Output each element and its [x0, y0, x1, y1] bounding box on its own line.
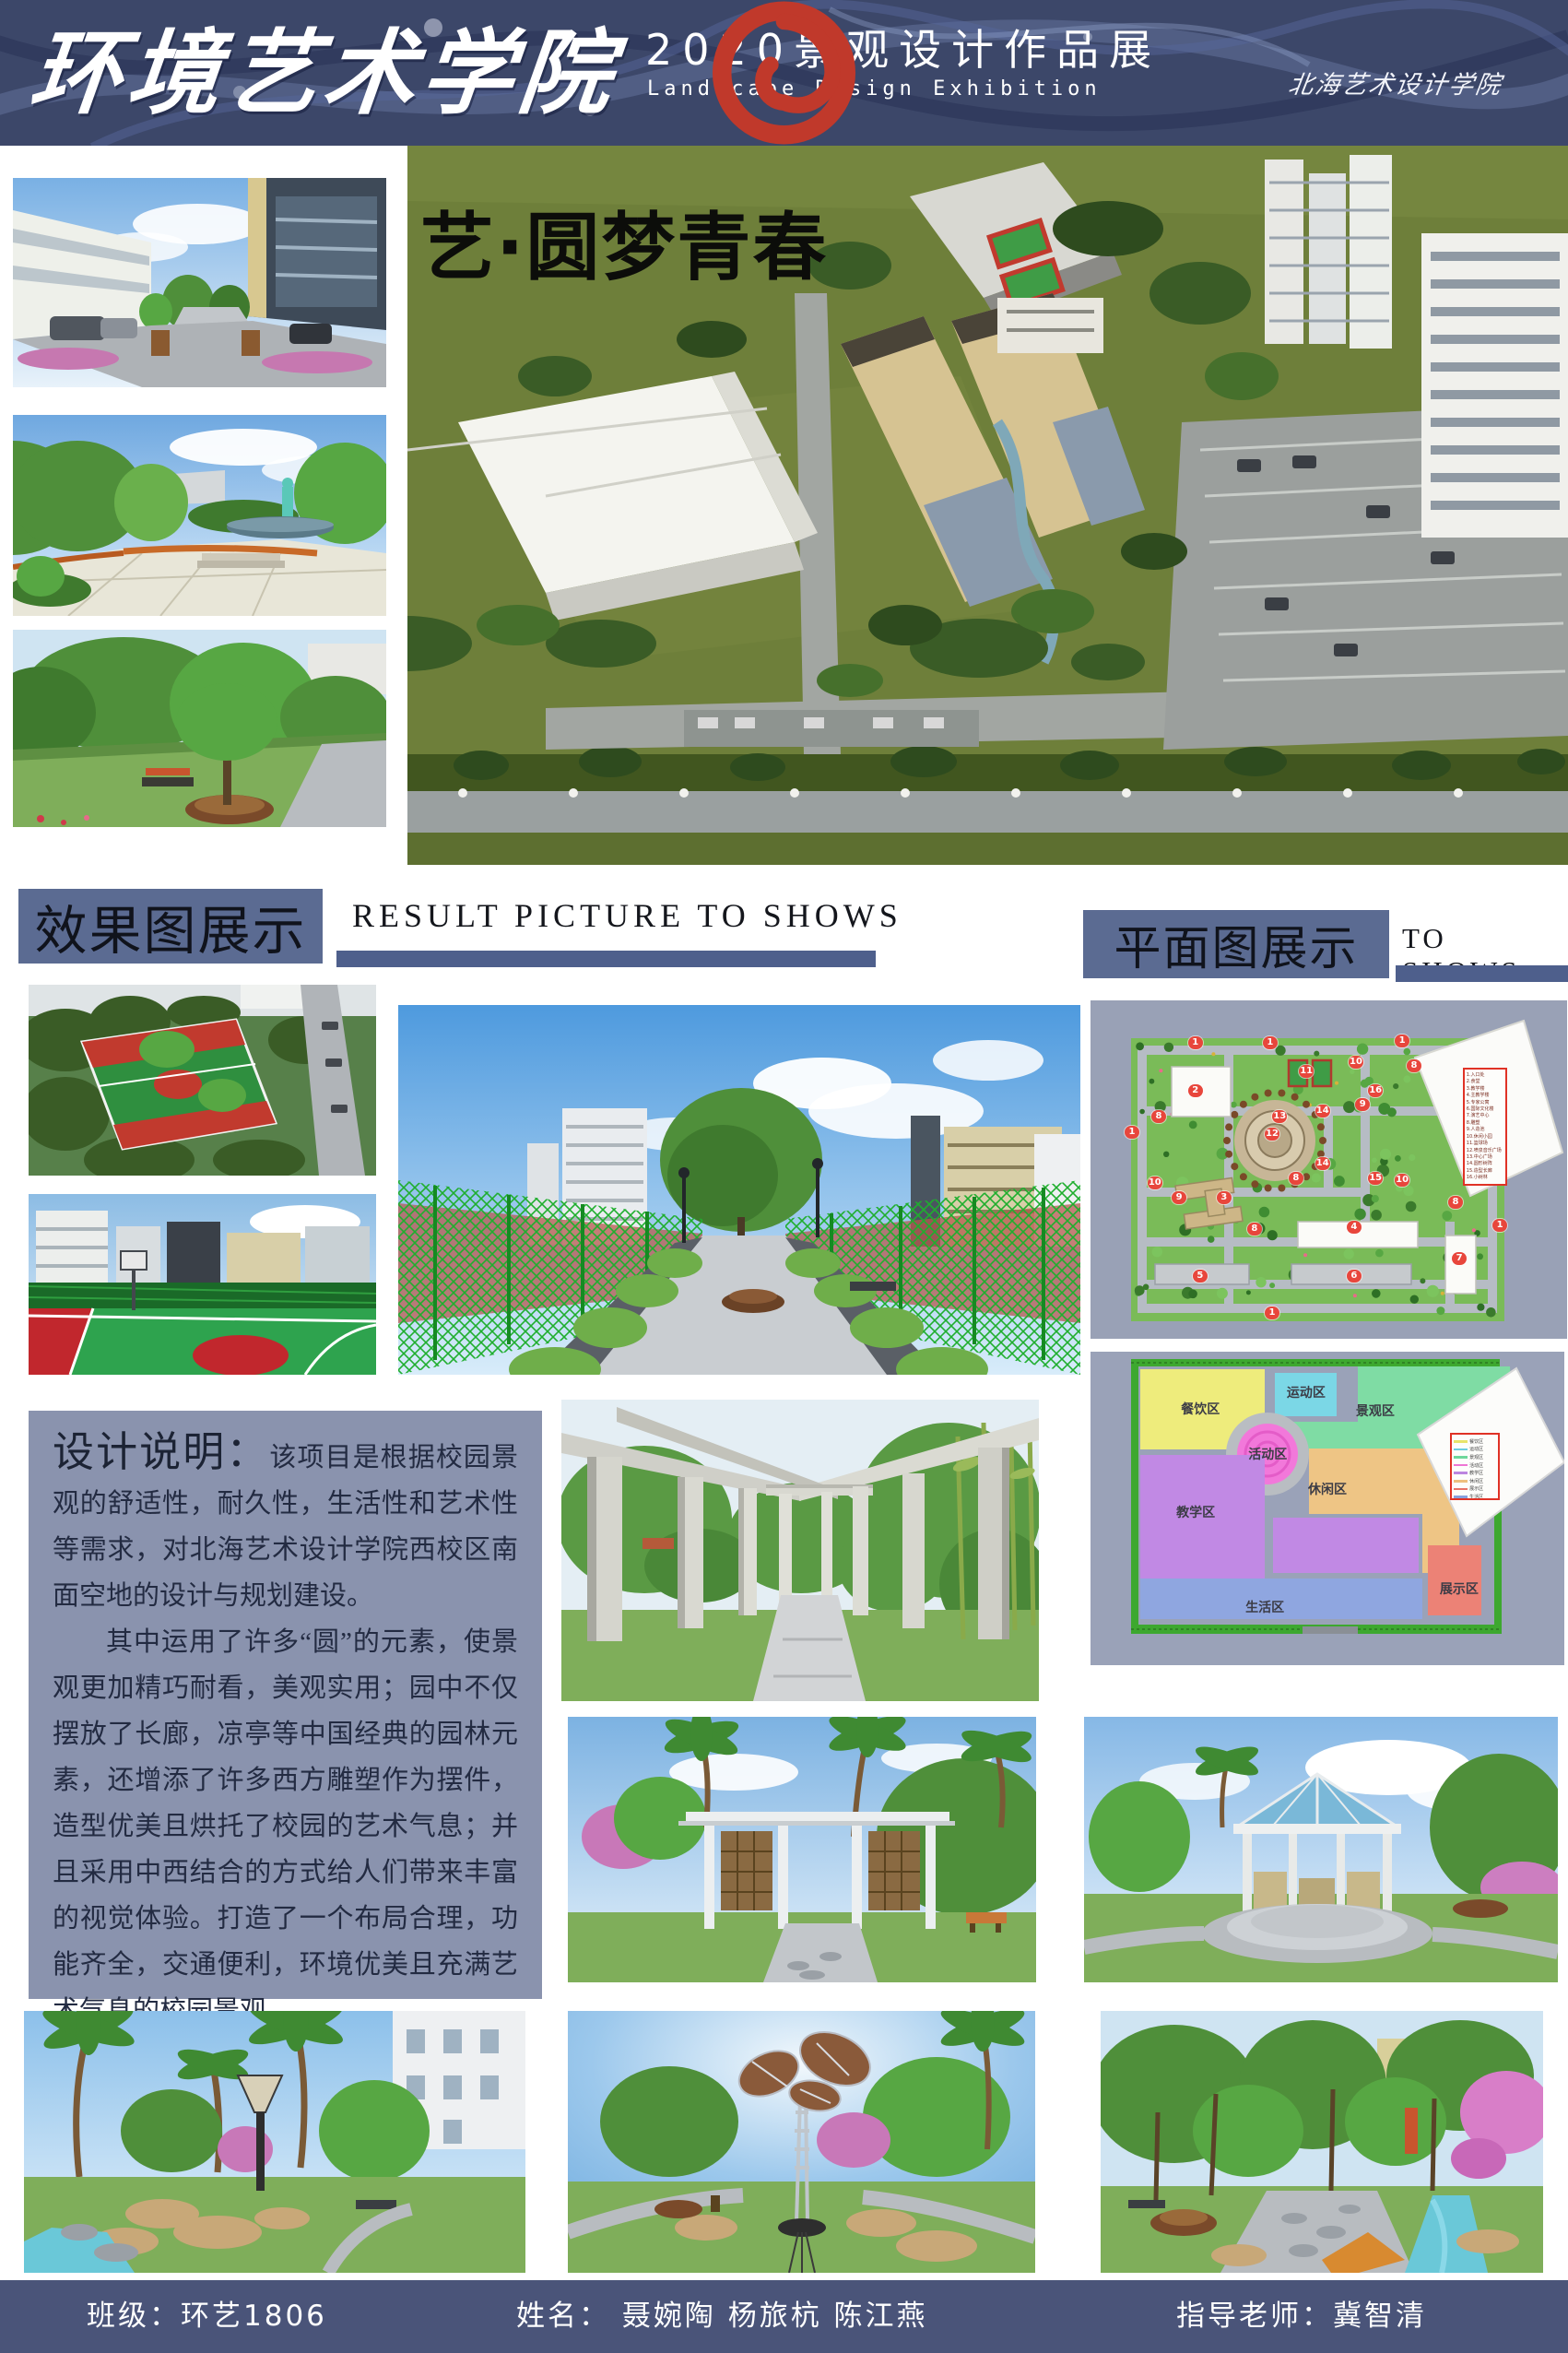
plan-number-marker: 10 — [1395, 1174, 1409, 1187]
section-plan-underline-bar — [1396, 965, 1568, 982]
plan-number-marker: 9 — [1355, 1098, 1370, 1111]
zone-legend-swatch — [1454, 1480, 1468, 1483]
header-banner: 环境艺术学院 2020景观设计作品展 Landscape Design Exhi… — [0, 0, 1568, 146]
zone-legend-item: 展示区 — [1454, 1485, 1496, 1494]
plan-number-marker: 5 — [1193, 1270, 1208, 1283]
plan-number-marker: 8 — [1407, 1059, 1421, 1072]
render-flower-sculpture-image — [568, 2011, 1035, 2273]
site-plan-legend-items: 1.入口处2.食堂3.教学楼4.主教学楼5.专家公寓6.国际文化楼7.演艺中心8… — [1467, 1072, 1504, 1182]
design-description-paragraph-1: 设计说明：该项目是根据校园景观的舒适性，耐久性，生活性和艺术性等需求，对北海艺术… — [53, 1429, 518, 1619]
plan-number-marker: 8 — [1247, 1223, 1262, 1236]
section-effect-title-box: 效果图展示 — [18, 889, 323, 964]
render-pergola-corridor-image — [561, 1400, 1039, 1701]
site-legend-item: 7.演艺中心 — [1467, 1113, 1504, 1119]
plan-number-marker: 16 — [1368, 1084, 1383, 1097]
zone-legend-swatch — [1454, 1440, 1468, 1443]
zone-legend-swatch — [1454, 1488, 1468, 1491]
zone-label: 生活区 — [1245, 1598, 1284, 1616]
plan-number-marker: 6 — [1347, 1270, 1362, 1283]
plan-number-marker: 14 — [1315, 1105, 1330, 1117]
zone-label: 展示区 — [1440, 1579, 1479, 1598]
zone-legend-swatch — [1454, 1472, 1468, 1474]
zone-legend-item: 餐饮区 — [1454, 1437, 1496, 1446]
plan-number-marker: 8 — [1448, 1196, 1463, 1209]
plan-number-marker: 1 — [1188, 1036, 1203, 1049]
site-legend-item: 14.圆形树阵 — [1467, 1161, 1504, 1167]
design-description-box: 设计说明：该项目是根据校园景观的舒适性，耐久性，生活性和艺术性等需求，对北海艺术… — [29, 1411, 542, 1999]
names-label: 姓名： 聂婉陶 杨旅杭 陈江燕 — [516, 2280, 928, 2353]
site-legend-item: 2.食堂 — [1467, 1079, 1504, 1085]
plan-number-marker: 4 — [1347, 1221, 1362, 1234]
plan-number-marker: 1 — [1265, 1307, 1279, 1319]
design-description-title: 设计说明： — [53, 1429, 269, 1475]
site-legend-item: 11.篮球场 — [1467, 1141, 1504, 1147]
render-lawn-garden-image — [13, 630, 386, 827]
poster: 环境艺术学院 2020景观设计作品展 Landscape Design Exhi… — [0, 0, 1568, 2353]
plan-number-marker: 8 — [1151, 1110, 1166, 1123]
plan-number-marker: 13 — [1272, 1110, 1287, 1123]
site-legend-item: 15.造型长廊 — [1467, 1168, 1504, 1175]
plan-number-marker: 15 — [1368, 1172, 1383, 1185]
advisor-label: 指导老师：冀智清 — [1176, 2280, 1427, 2353]
render-fountain-plaza-image — [13, 415, 386, 616]
plan-number-marker: 3 — [1217, 1191, 1232, 1204]
section-effect-subtitle: RESULT PICTURE TO SHOWS — [352, 896, 902, 935]
site-legend-item: 4.主教学楼 — [1467, 1093, 1504, 1099]
design-description-paragraph-2: 其中运用了许多“圆”的元素，使景观更加精巧耐看，美观实用；园中不仅摆放了长廊，凉… — [53, 1619, 518, 2034]
render-basketball-court-image — [29, 1194, 376, 1375]
site-plan-figure: 111111234567888889910101011121314141516 … — [1091, 1000, 1567, 1339]
zone-label: 休闲区 — [1308, 1480, 1347, 1498]
section-plan-title-box: 平面图展示 — [1083, 910, 1389, 978]
zone-label: 景观区 — [1356, 1401, 1395, 1420]
zone-plan-legend-items: 餐饮区运动区景观区活动区教学区休闲区展示区生活区 — [1454, 1437, 1496, 1500]
plan-number-marker: 10 — [1148, 1176, 1162, 1189]
plan-number-marker: 2 — [1188, 1084, 1203, 1097]
section-plan-title: 平面图展示 — [1114, 910, 1358, 978]
plan-number-marker: 11 — [1299, 1065, 1314, 1078]
site-legend-item: 9.人造池 — [1467, 1127, 1504, 1133]
zone-legend-item: 教学区 — [1454, 1469, 1496, 1477]
render-street-view-image — [13, 178, 386, 387]
site-legend-item: 5.专家公寓 — [1467, 1100, 1504, 1106]
plan-number-marker: 12 — [1265, 1128, 1279, 1141]
site-legend-item: 16.小树林 — [1467, 1175, 1504, 1181]
zone-label: 活动区 — [1248, 1445, 1287, 1463]
zone-label: 餐饮区 — [1181, 1400, 1220, 1418]
zone-plan-figure: 餐饮区运动区景观区活动区休闲区教学区生活区展示区 餐饮区运动区景观区活动区教学区… — [1091, 1352, 1564, 1665]
plan-number-marker: 1 — [1395, 1035, 1409, 1047]
zone-label: 运动区 — [1287, 1383, 1326, 1401]
render-palm-stream-image — [24, 2011, 525, 2273]
plan-number-marker: 1 — [1263, 1036, 1278, 1049]
masterplan-title: 艺·圆梦青春 — [420, 188, 828, 295]
render-garden-path-image — [1101, 2011, 1543, 2273]
plan-number-marker: 1 — [1492, 1219, 1507, 1232]
zone-legend-swatch — [1454, 1496, 1468, 1498]
school-swirl-logo-icon — [0, 0, 1568, 146]
zone-plan-legend: 餐饮区运动区景观区活动区教学区休闲区展示区生活区 — [1450, 1433, 1500, 1500]
site-legend-item: 10.休闲小园 — [1467, 1134, 1504, 1141]
plan-number-marker: 7 — [1452, 1252, 1467, 1265]
zone-legend-item: 生活区 — [1454, 1493, 1496, 1500]
zone-legend-swatch — [1454, 1464, 1468, 1467]
plan-number-marker: 14 — [1315, 1157, 1330, 1170]
site-plan-legend: 1.入口处2.食堂3.教学楼4.主教学楼5.专家公寓6.国际文化楼7.演艺中心8… — [1463, 1068, 1508, 1186]
zone-legend-swatch — [1454, 1448, 1468, 1451]
footer-credits-bar: 班级：环艺1806 姓名： 聂婉陶 杨旅杭 陈江燕 指导老师：冀智清 — [0, 2280, 1568, 2353]
render-lattice-pergola-image — [568, 1717, 1036, 1982]
zone-labels: 餐饮区运动区景观区活动区休闲区教学区生活区展示区 — [1091, 1352, 1564, 1665]
zone-legend-item: 活动区 — [1454, 1461, 1496, 1470]
plan-number-marker: 9 — [1172, 1191, 1186, 1204]
render-masterplan-aerial-image: 艺·圆梦青春 — [407, 146, 1568, 865]
plan-number-marker: 8 — [1289, 1172, 1303, 1185]
section-effect-underline-bar — [336, 951, 876, 967]
zone-legend-item: 运动区 — [1454, 1446, 1496, 1454]
render-court-aerial-image — [29, 985, 376, 1176]
section-effect-title: 效果图展示 — [35, 889, 307, 964]
class-label: 班级：环艺1806 — [87, 2280, 327, 2353]
plan-number-marker: 10 — [1349, 1056, 1363, 1069]
zone-label: 教学区 — [1176, 1503, 1215, 1521]
zone-legend-item: 景观区 — [1454, 1453, 1496, 1461]
zone-legend-item: 休闲区 — [1454, 1477, 1496, 1485]
zone-legend-swatch — [1454, 1456, 1468, 1459]
plan-number-marker: 1 — [1125, 1126, 1139, 1139]
render-gazebo-image — [1084, 1717, 1558, 1982]
site-legend-item: 12.喷泉音乐广场 — [1467, 1148, 1504, 1154]
render-fenced-walkway-image — [398, 1005, 1080, 1375]
